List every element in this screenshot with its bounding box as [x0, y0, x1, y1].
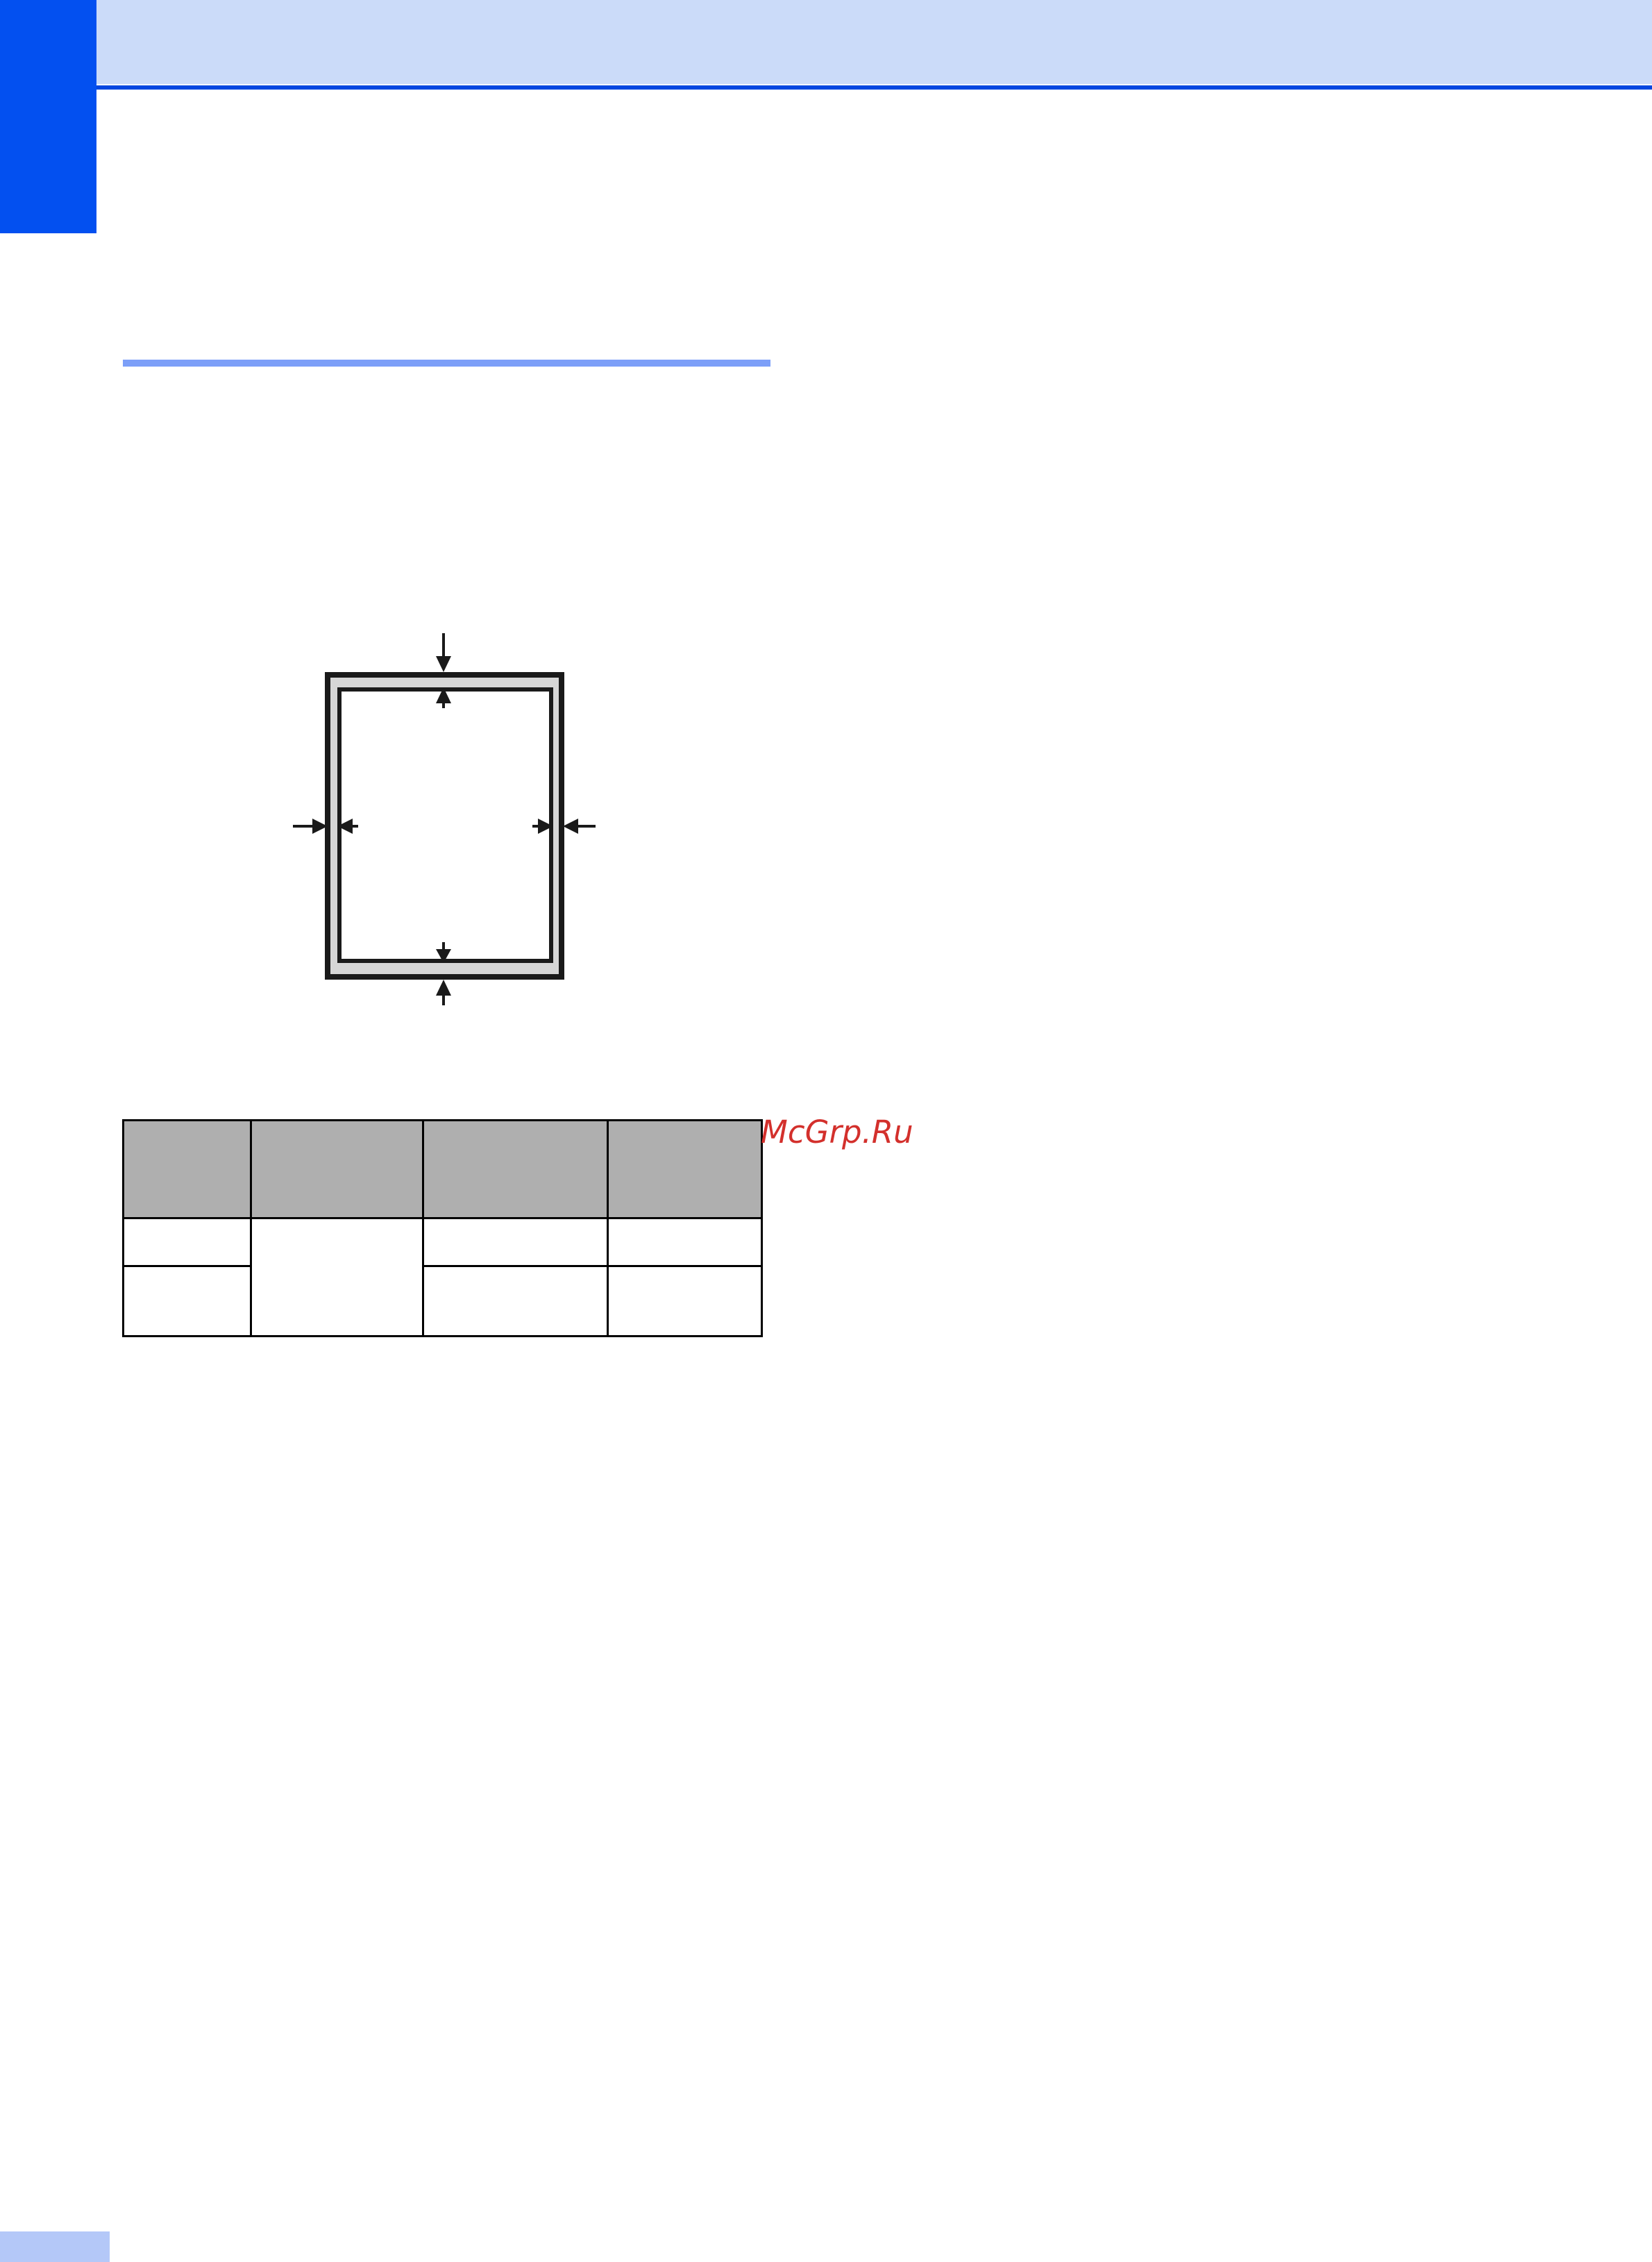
table-row [124, 1266, 762, 1337]
specs-table [122, 1119, 763, 1337]
table-cell [423, 1266, 608, 1337]
table-cell-merged [251, 1218, 423, 1337]
table-cell [423, 1218, 608, 1266]
table-cell [124, 1218, 251, 1266]
watermark-text: McGrp.Ru [761, 1116, 913, 1148]
table-header-cell [251, 1121, 423, 1218]
section-heading-underline [123, 360, 770, 367]
chapter-tab [0, 0, 96, 233]
header-rule [96, 85, 1652, 90]
table-cell [124, 1266, 251, 1337]
table-header-cell [608, 1121, 762, 1218]
printable-area [339, 689, 551, 961]
table-header-cell [124, 1121, 251, 1218]
table-cell [608, 1266, 762, 1337]
table-header-cell [423, 1121, 608, 1218]
table-row [124, 1218, 762, 1266]
unprintable-area-diagram [285, 621, 604, 1017]
table-header-row [124, 1121, 762, 1218]
table-cell [608, 1218, 762, 1266]
page-number-block [0, 2231, 110, 2262]
document-page: McGrp.Ru [0, 0, 1652, 2262]
header-band [96, 0, 1652, 84]
